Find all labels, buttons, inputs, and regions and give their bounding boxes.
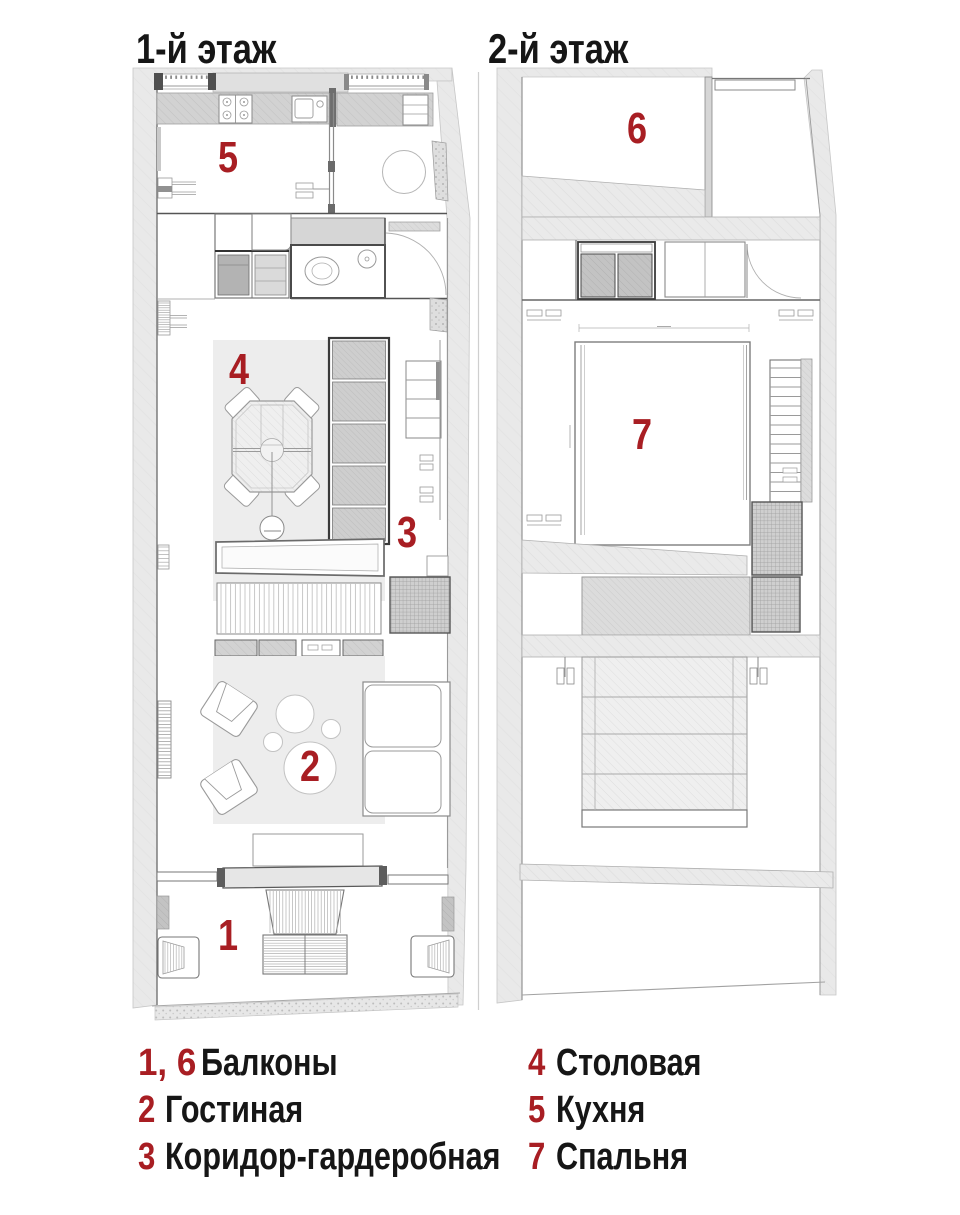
svg-text:Кухня: Кухня [556,1089,645,1131]
svg-text:Гостиная: Гостиная [165,1089,303,1131]
svg-text:4: 4 [528,1042,546,1084]
svg-text:Столовая: Столовая [556,1042,702,1084]
svg-text:Спальня: Спальня [556,1136,688,1178]
svg-text:7: 7 [632,410,652,459]
svg-text:5: 5 [218,133,238,182]
svg-text:Балконы: Балконы [201,1042,338,1084]
svg-text:6: 6 [627,104,647,153]
svg-text:2: 2 [138,1089,155,1131]
svg-text:1-й этаж: 1-й этаж [136,26,277,73]
svg-text:2-й этаж: 2-й этаж [488,26,629,73]
svg-text:Коридор-гардеробная: Коридор-гардеробная [165,1136,500,1178]
svg-text:3: 3 [397,508,417,557]
svg-text:4: 4 [229,345,250,394]
svg-text:1: 1 [218,911,238,960]
svg-text:2: 2 [300,742,320,791]
svg-text:3: 3 [138,1136,155,1178]
svg-text:1, 6: 1, 6 [138,1041,196,1084]
svg-text:7: 7 [528,1136,545,1178]
svg-text:5: 5 [528,1089,545,1131]
